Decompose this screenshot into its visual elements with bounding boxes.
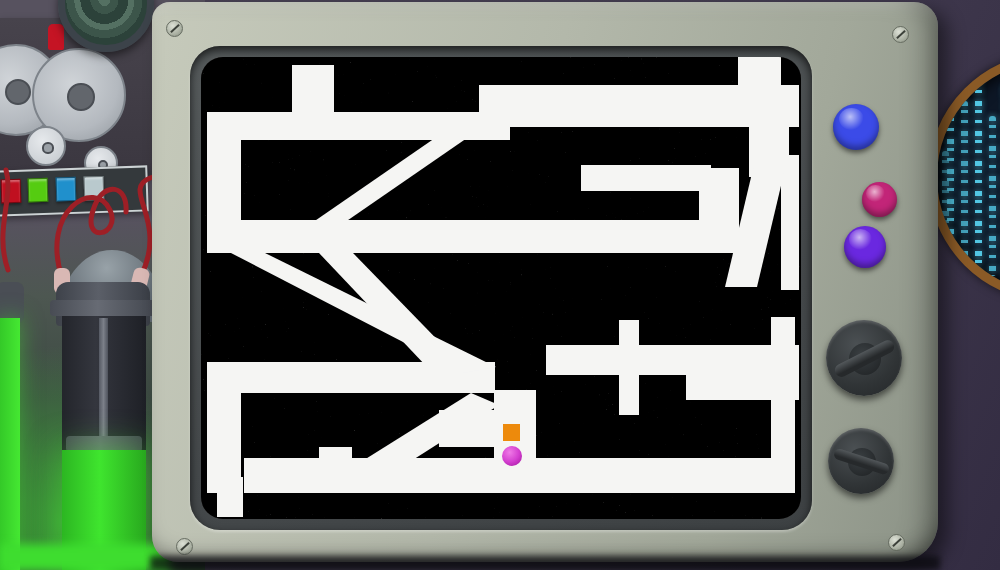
tv-lower-knob[interactable] [828, 428, 894, 494]
screw-bottom-left [176, 538, 193, 555]
maze-path-segment [479, 85, 799, 127]
digital-rain-column [989, 116, 996, 276]
screw-top-right [892, 26, 909, 43]
maze-path-segment [217, 477, 243, 517]
porthole-window [928, 52, 1000, 302]
maze-path-segment [738, 57, 781, 87]
tv-purple-button[interactable] [844, 226, 886, 268]
player-ball[interactable] [502, 446, 522, 466]
maze-path-segment [207, 140, 241, 225]
tv-shadow [150, 556, 940, 570]
canister-flange [50, 300, 156, 316]
screw-top-left [166, 20, 183, 37]
maze-path-segment [581, 165, 711, 191]
maze-path-segment [292, 65, 334, 112]
maze-path-segment [699, 168, 739, 224]
record-button[interactable] [48, 24, 64, 50]
digital-rain-column [975, 71, 982, 281]
tv-upper-knob[interactable] [826, 320, 902, 396]
small-green-canister [0, 318, 20, 570]
orange-goal-marker [503, 424, 520, 441]
floor-glow [0, 544, 170, 570]
digital-rain-column [942, 151, 949, 261]
maze-screen [201, 57, 801, 519]
maze-path-segment [207, 220, 739, 253]
maze-path-segment [781, 155, 799, 290]
digital-rain-column [961, 101, 968, 271]
canister-piston-rod [99, 318, 108, 440]
maze [201, 57, 801, 519]
tv-monitor [152, 2, 938, 562]
screw-bottom-right [888, 534, 905, 551]
maze-path-segment [619, 320, 639, 415]
maze-path-segment [771, 317, 795, 493]
tv-pink-button[interactable] [862, 182, 897, 217]
maze-path-segment [546, 345, 799, 375]
scene [0, 0, 1000, 570]
tv-blue-button[interactable] [833, 104, 879, 150]
screen-bezel [190, 46, 812, 530]
